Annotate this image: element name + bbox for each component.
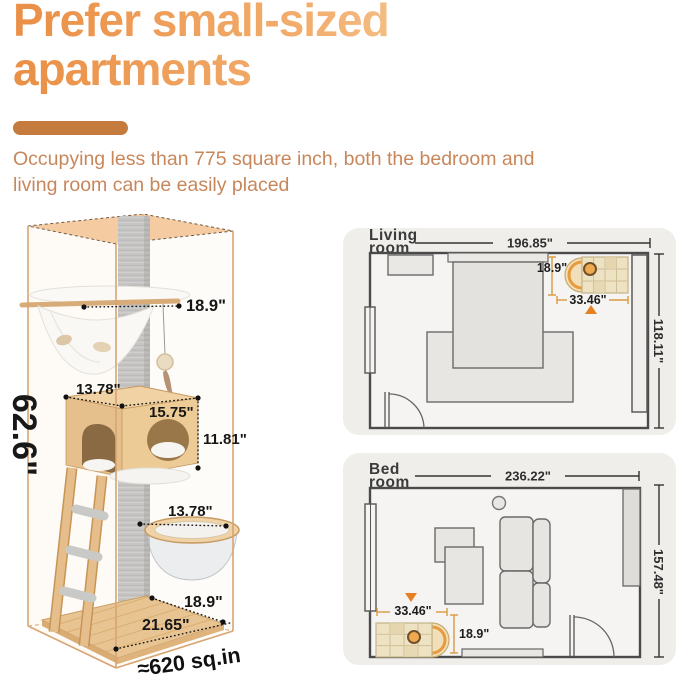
sofa-cushion [500, 571, 533, 628]
perch-width-label: 18.9" [186, 297, 226, 315]
bedroom-depth-label: 157.48" [651, 549, 666, 595]
quilt-tile [404, 646, 418, 657]
low-shelf [462, 649, 543, 657]
page-title: Prefer small-sized apartments [13, 0, 673, 94]
living-width-label: 196.85" [507, 236, 553, 251]
table [445, 547, 483, 604]
dim-dot [137, 521, 142, 526]
base-width-label: 21.65" [142, 617, 190, 634]
dim-dot [176, 303, 181, 308]
dim-dot [113, 646, 118, 651]
tree-width-label: 33.46" [569, 293, 606, 307]
bedroom-card: Bed room 236.22" 157.48" [343, 453, 676, 665]
page-container: Prefer small-sized apartments Occupying … [0, 0, 679, 679]
dim-dot [149, 595, 154, 600]
overall-height-label: 62.6" [5, 394, 43, 476]
bowl-diameter-label: 13.78" [168, 503, 213, 520]
tree-depth-label: 18.9" [459, 627, 489, 641]
headboard [448, 253, 548, 262]
console [632, 255, 647, 412]
dim-dot [223, 523, 228, 528]
ceiling-lamp [493, 497, 506, 510]
subtitle-line-2: living room can be easily placed [13, 172, 663, 198]
sofa-side [533, 583, 550, 627]
condo-arch-cushion [83, 459, 115, 471]
cat-tree-topview [376, 623, 449, 657]
sofa [500, 517, 550, 628]
bedroom-floorplan: Bed room 236.22" 157.48" [343, 453, 676, 665]
tree-depth-label: 18.9" [537, 261, 567, 275]
living-room-floorplan: Living room 196.85" 118.11" [343, 228, 676, 435]
cat-tree-topview [565, 257, 628, 293]
bowl-inner [155, 522, 229, 539]
page-title-line-2: apartments [13, 45, 673, 94]
condo-depth-label: 13.78" [76, 381, 121, 398]
living-depth-label: 118.11" [651, 319, 666, 364]
condo-base-cushion [110, 468, 190, 484]
topview-ball [584, 263, 596, 275]
dim-dot [220, 619, 225, 624]
divider-pill [13, 121, 128, 135]
subtitle-line-1: Occupying less than 775 square inch, bot… [13, 146, 663, 172]
quilt-tile [390, 623, 404, 634]
dim-dot [195, 465, 200, 470]
condo-height-label: 11.81" [203, 431, 247, 448]
cat-tree-figure: 18.9" 13.78" 15.75" 11.81" 13.78" 18.9" … [0, 214, 345, 679]
quilt-tile [594, 281, 606, 293]
sofa-cushion [500, 517, 533, 571]
bedroom-width-label: 236.22" [505, 469, 551, 484]
condo-width-label: 15.75" [149, 404, 194, 421]
page-subtitle: Occupying less than 775 square inch, bot… [13, 146, 663, 198]
sofa-side [533, 519, 550, 583]
quilt-tile [605, 257, 617, 269]
living-room-card: Living room 196.85" 118.11" [343, 228, 676, 435]
page-title-line-1: Prefer small-sized [13, 0, 673, 45]
dim-dot [119, 403, 124, 408]
radiator [623, 489, 640, 586]
condo-hole-cushion [151, 442, 185, 458]
dim-dot [195, 395, 200, 400]
topview-ball [408, 631, 420, 643]
base-depth-label: 18.9" [184, 594, 223, 611]
dim-dot [63, 394, 68, 399]
tree-width-label: 33.46" [394, 604, 431, 618]
closet [388, 255, 433, 275]
bed [453, 262, 543, 368]
toy-ball [157, 354, 173, 370]
dim-dot [81, 304, 86, 309]
